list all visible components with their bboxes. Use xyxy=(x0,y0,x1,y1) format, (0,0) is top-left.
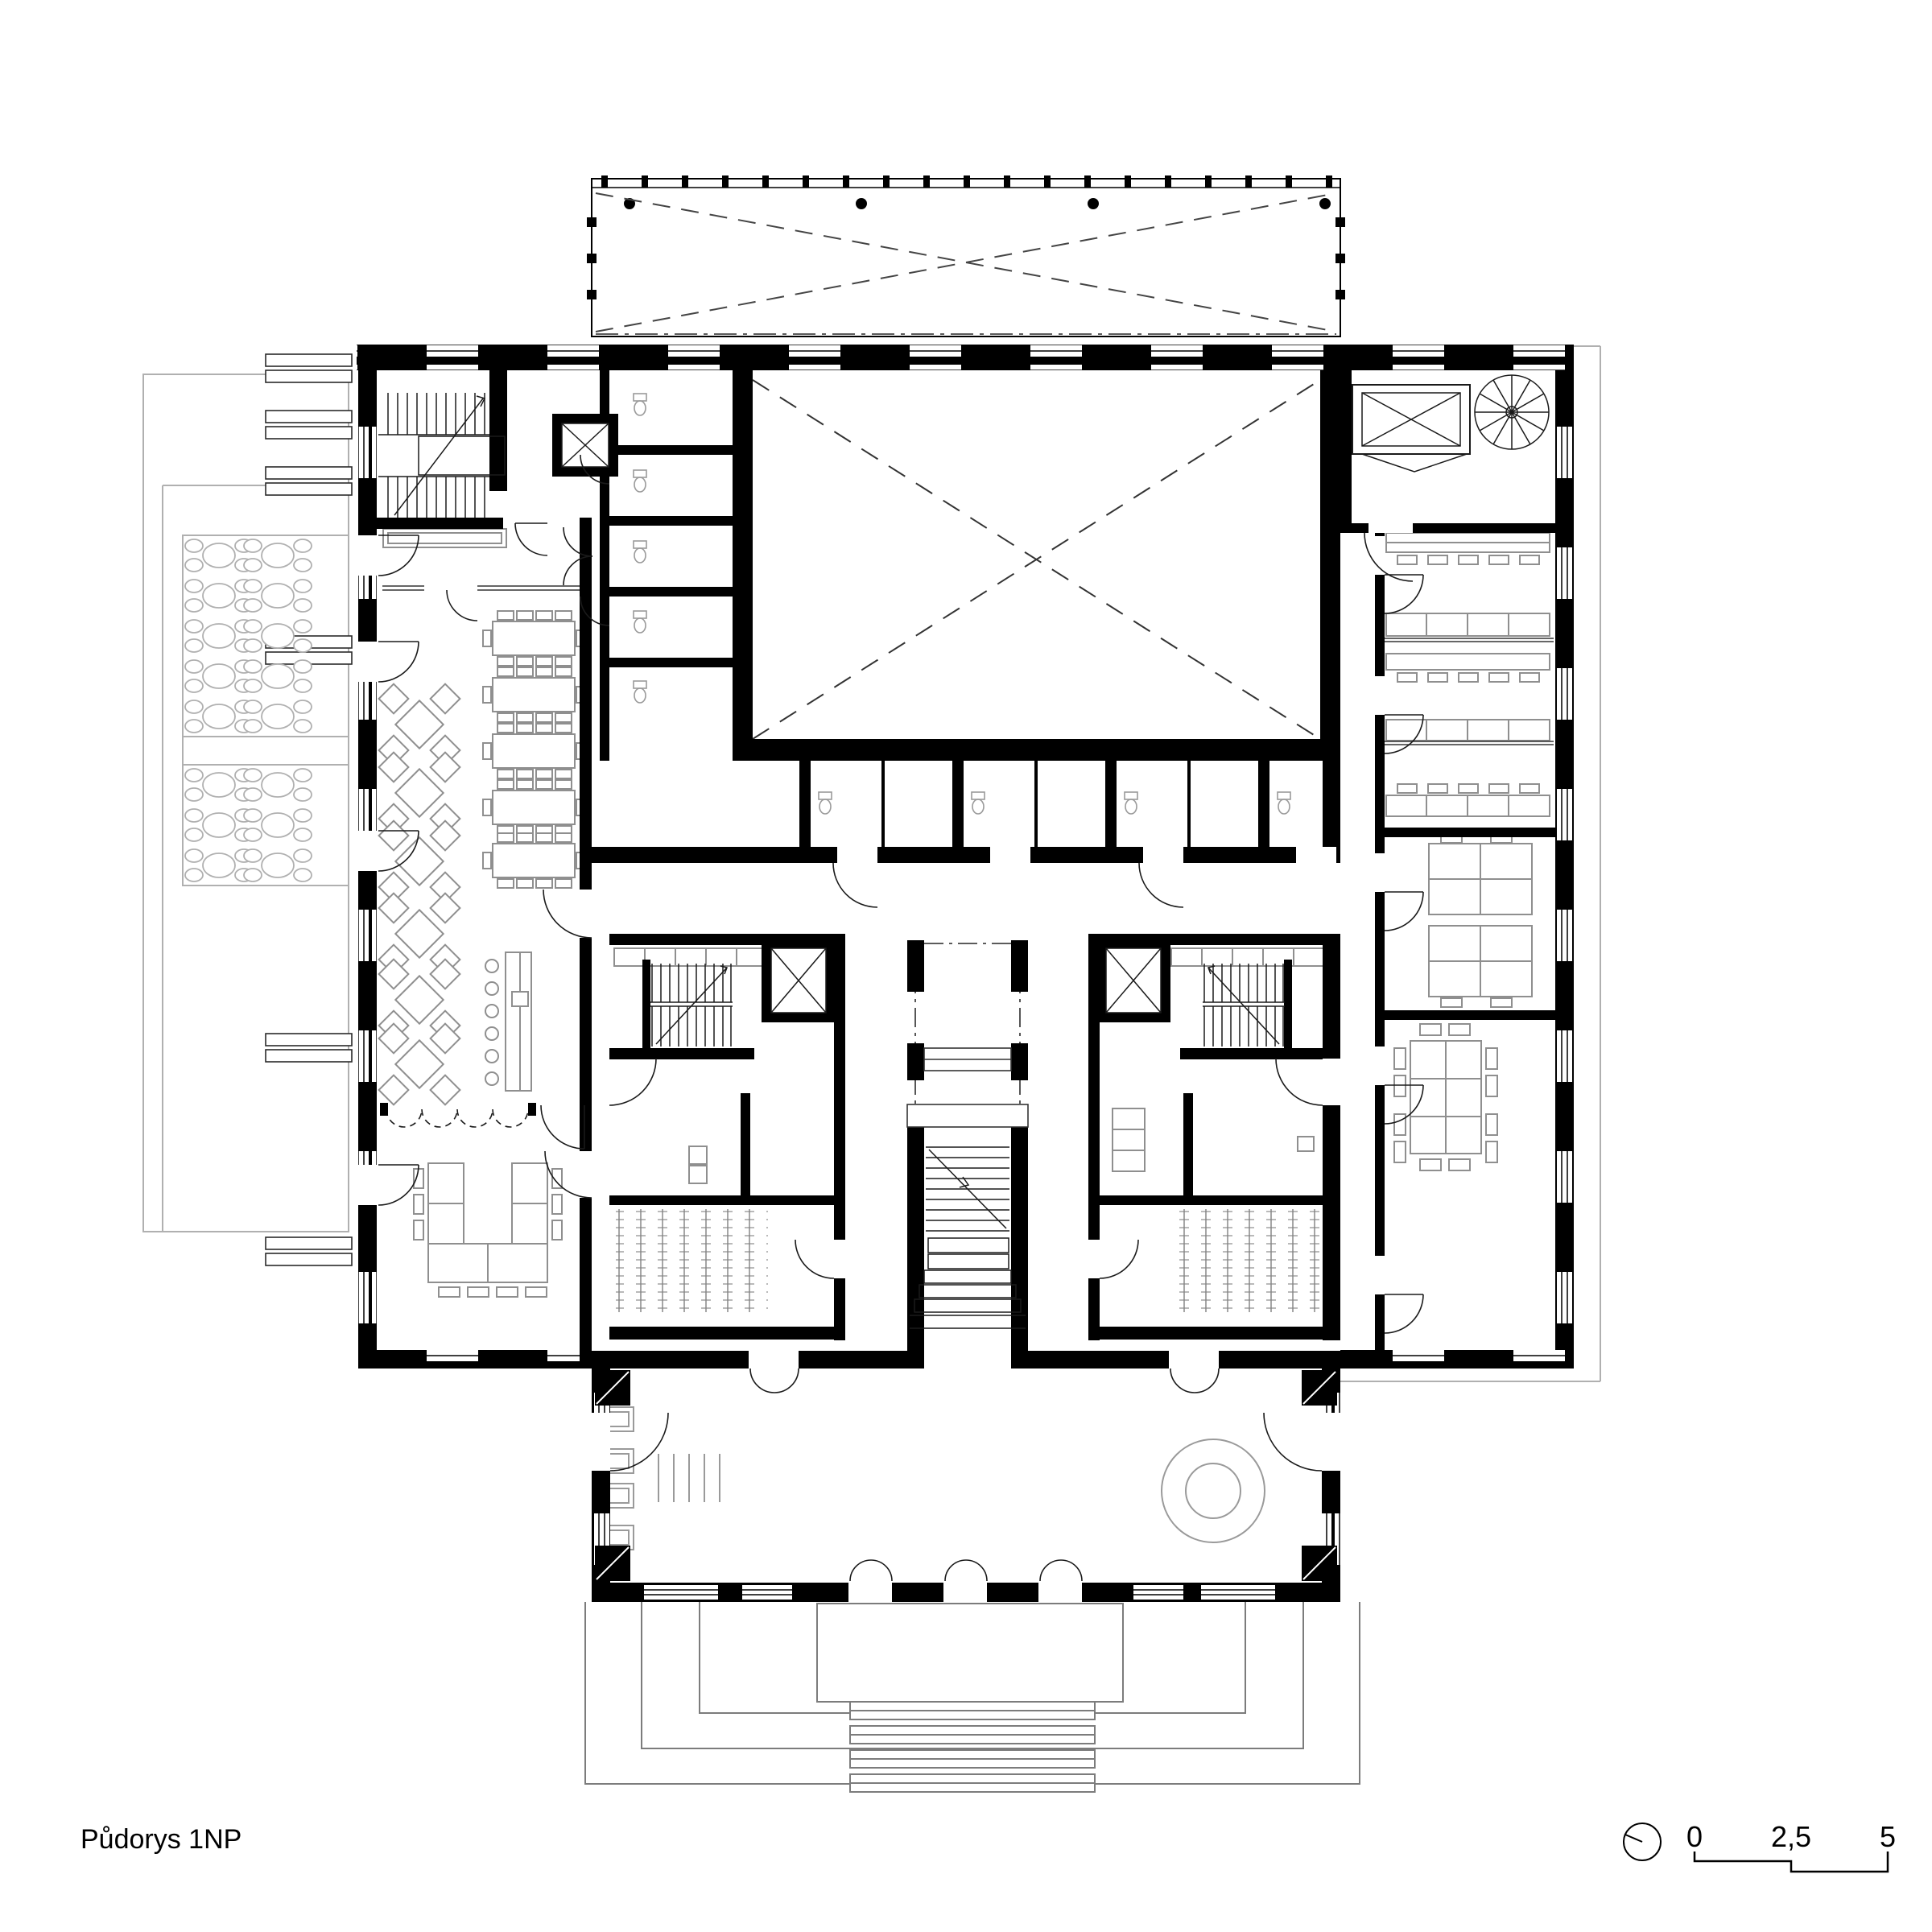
round-feature xyxy=(1162,1439,1265,1542)
sink xyxy=(689,1166,707,1183)
long-table xyxy=(483,780,584,835)
diagonal-table xyxy=(379,1024,460,1105)
meeting-table xyxy=(1394,1024,1497,1170)
toilet-icon xyxy=(634,541,646,563)
long-table xyxy=(483,833,584,888)
north-facade-wall xyxy=(357,345,1574,370)
terrace-table xyxy=(185,809,253,841)
floorplan-drawing: Půdorys 1NP 0 2,5 5 xyxy=(0,0,1932,1932)
bar-counter xyxy=(485,952,531,1091)
terrace-table xyxy=(244,849,312,881)
scale-label-end: 5 xyxy=(1880,1820,1896,1853)
core-cabinets xyxy=(614,948,1324,1183)
sink xyxy=(1298,1137,1314,1151)
main-staircase xyxy=(910,1147,1026,1328)
kitchenette xyxy=(1113,1108,1145,1171)
entrance-terraces xyxy=(585,1602,1360,1792)
west-bay-sills xyxy=(266,354,352,1265)
terrace-table-clusters xyxy=(185,539,312,881)
elevator-icon xyxy=(771,948,826,1013)
u-shaped-table xyxy=(414,1163,562,1297)
queue-lines xyxy=(658,1454,720,1502)
long-table xyxy=(483,724,584,778)
entrance-steps xyxy=(850,1702,1095,1792)
scale-bar-line xyxy=(1695,1851,1888,1872)
terrace-table xyxy=(244,809,312,841)
central-void-edges xyxy=(915,940,1020,1124)
sideboard xyxy=(383,529,506,547)
terrace-table xyxy=(185,769,253,801)
diagonal-table xyxy=(379,684,460,766)
desk-cluster xyxy=(1429,834,1532,914)
south-wall-left-wing xyxy=(358,1350,592,1368)
northwest-staircase xyxy=(378,393,505,518)
desk-cluster xyxy=(1429,926,1532,1007)
diagonal-tables xyxy=(379,684,460,1105)
elevator-icon xyxy=(1106,948,1161,1013)
scale-label-middle: 2,5 xyxy=(1771,1820,1811,1853)
canopy-diagonals xyxy=(596,193,1336,332)
sink xyxy=(689,1146,707,1164)
terrace-table xyxy=(244,580,312,612)
roof-canopy xyxy=(587,175,1345,336)
toilet-icon xyxy=(1125,792,1137,814)
terrace-table xyxy=(185,620,253,652)
entrance-hall-furniture xyxy=(599,1407,1265,1550)
terrace-table xyxy=(244,769,312,801)
folding-partition xyxy=(386,1109,528,1127)
hall-columns xyxy=(595,1370,1337,1581)
long-table xyxy=(483,667,584,722)
terrace-table xyxy=(185,660,253,692)
spiral-stair-icon xyxy=(1475,375,1549,449)
scale-label-start: 0 xyxy=(1686,1820,1703,1853)
terrace-table xyxy=(185,580,253,612)
terrace-table xyxy=(185,539,253,572)
skylight-icon xyxy=(1352,385,1470,472)
terrace-table xyxy=(244,539,312,572)
drawing-title: Půdorys 1NP xyxy=(80,1824,242,1855)
toilet-icon xyxy=(634,611,646,633)
terrace-table xyxy=(244,660,312,692)
entrance-porch xyxy=(817,1604,1123,1702)
office-furniture xyxy=(1386,533,1550,1170)
west-terrace-outline xyxy=(143,374,349,1232)
slab-edge xyxy=(907,1104,1028,1127)
long-table xyxy=(483,611,584,666)
terrace-table xyxy=(185,700,253,733)
terrace-table xyxy=(185,849,253,881)
north-indicator-icon xyxy=(1624,1823,1661,1860)
canopy-ticks xyxy=(601,175,1332,188)
coat-racks xyxy=(616,1209,1323,1312)
right-core-staircase xyxy=(1203,964,1285,1046)
toilet-icon xyxy=(634,681,646,703)
left-core-staircase xyxy=(650,964,733,1046)
elevator-icon xyxy=(562,423,609,467)
floorplan-sheet: Půdorys 1NP 0 2,5 5 xyxy=(0,0,1932,1932)
toilet-icon xyxy=(972,792,985,814)
long-tables xyxy=(483,611,584,888)
toilet-icon xyxy=(1278,792,1290,814)
toilet-icon xyxy=(634,394,646,415)
restaurant-furniture xyxy=(379,529,584,1297)
diagonal-table xyxy=(379,753,460,834)
diagonal-table xyxy=(379,821,460,902)
scale-bar: 0 2,5 5 xyxy=(1624,1820,1896,1872)
terrace-table xyxy=(244,700,312,733)
toilet-icon xyxy=(634,470,646,492)
toilet-icon xyxy=(819,792,832,814)
atrium-void xyxy=(753,380,1320,739)
east-facade-wall xyxy=(1555,370,1574,1351)
